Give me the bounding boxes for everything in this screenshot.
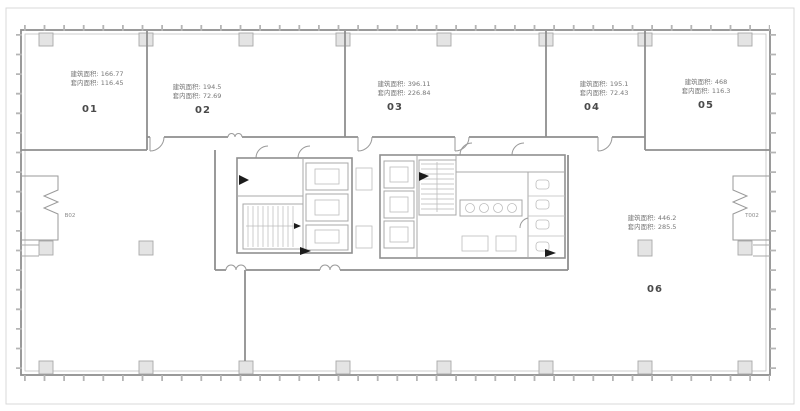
- unit-02-labels: 建筑面积: 194.5 套内面积: 72.69 02: [173, 82, 222, 116]
- unit-06-built-area: 建筑面积: 446.2: [628, 213, 677, 222]
- unit-04-labels: 建筑面积: 195.1 套内面积: 72.43 04: [580, 79, 629, 113]
- unit-01-built-area: 建筑面积: 166.77: [71, 69, 124, 78]
- service-shafts: [356, 168, 372, 248]
- unit-02-built-area: 建筑面积: 194.5: [173, 82, 222, 91]
- unit-04-number: 04: [584, 102, 600, 113]
- unit-06-number: 06: [647, 284, 663, 295]
- left-wall-notch: [21, 176, 58, 240]
- unit-03-inner-area: 套内面积: 226.84: [378, 88, 431, 97]
- unit-04-built-area: 建筑面积: 195.1: [580, 79, 629, 88]
- left-stair-core: [237, 158, 352, 253]
- wall-tag-right: T002: [744, 213, 759, 219]
- floor-plan-image: 建筑面积: 166.77 套内面积: 116.45 01 建筑面积: 194.5…: [0, 0, 800, 411]
- unit-03-labels: 建筑面积: 396.11 套内面积: 226.84 03: [378, 79, 431, 113]
- wall-tag-left: B02: [65, 213, 76, 219]
- right-service-core: [380, 155, 565, 258]
- unit-03-built-area: 建筑面积: 396.11: [378, 79, 431, 88]
- unit-03-number: 03: [387, 102, 403, 113]
- unit-06-inner-area: 套内面积: 285.5: [628, 222, 677, 231]
- unit-05-labels: 建筑面积: 468 套内面积: 116.3 05: [682, 77, 731, 111]
- unit-02-inner-area: 套内面积: 72.69: [173, 91, 222, 100]
- unit-04-inner-area: 套内面积: 72.43: [580, 88, 629, 97]
- unit-05-number: 05: [698, 100, 714, 111]
- unit-05-inner-area: 套内面积: 116.3: [682, 86, 731, 95]
- unit-01-labels: 建筑面积: 166.77 套内面积: 116.45 01: [71, 69, 124, 115]
- unit-02-number: 02: [195, 105, 211, 116]
- unit-05-built-area: 建筑面积: 468: [685, 77, 728, 86]
- right-wall-notch: [733, 176, 770, 240]
- unit-01-number: 01: [82, 104, 98, 115]
- unit-01-inner-area: 套内面积: 116.45: [71, 78, 124, 87]
